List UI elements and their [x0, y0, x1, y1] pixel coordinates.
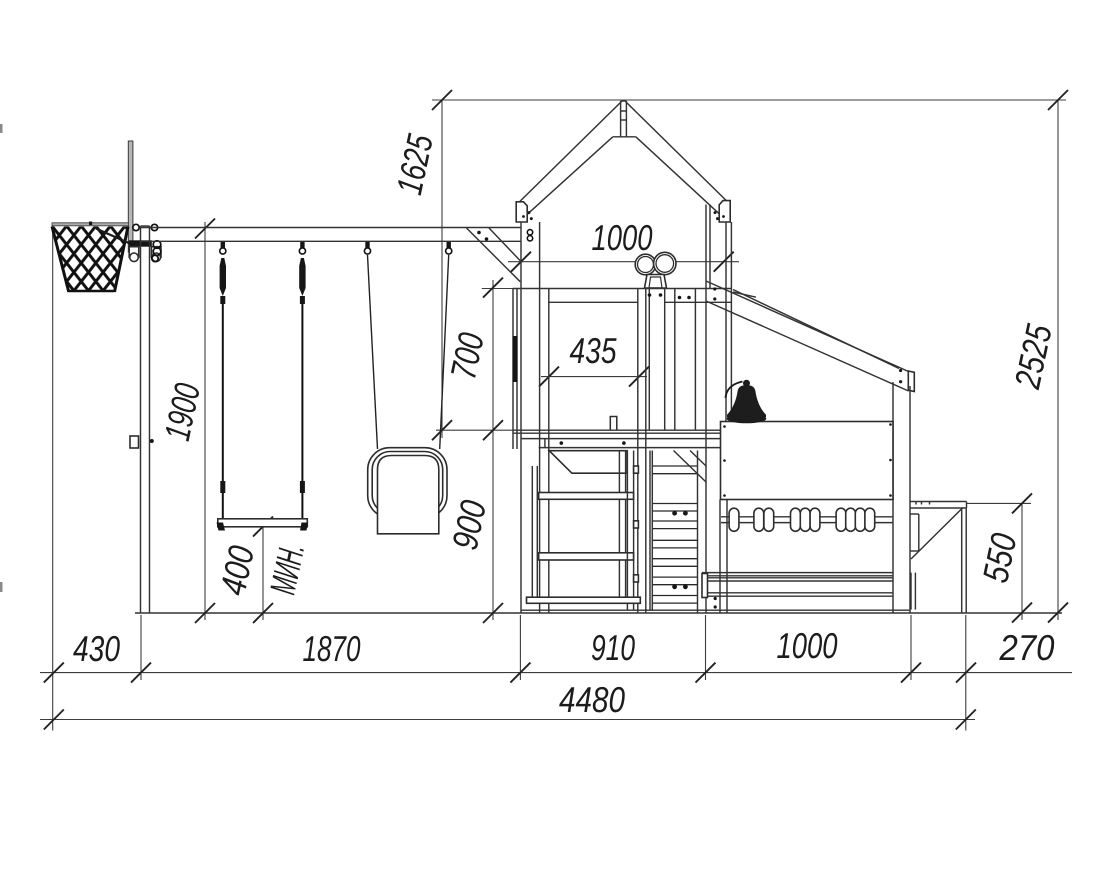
svg-text:4480: 4480	[559, 679, 625, 720]
svg-text:270: 270	[999, 627, 1055, 668]
svg-text:435: 435	[570, 330, 618, 371]
svg-text:1000: 1000	[592, 217, 653, 258]
svg-text:430: 430	[73, 628, 120, 669]
svg-text:910: 910	[591, 627, 635, 668]
svg-text:1000: 1000	[777, 625, 838, 666]
svg-text:1870: 1870	[303, 628, 361, 669]
